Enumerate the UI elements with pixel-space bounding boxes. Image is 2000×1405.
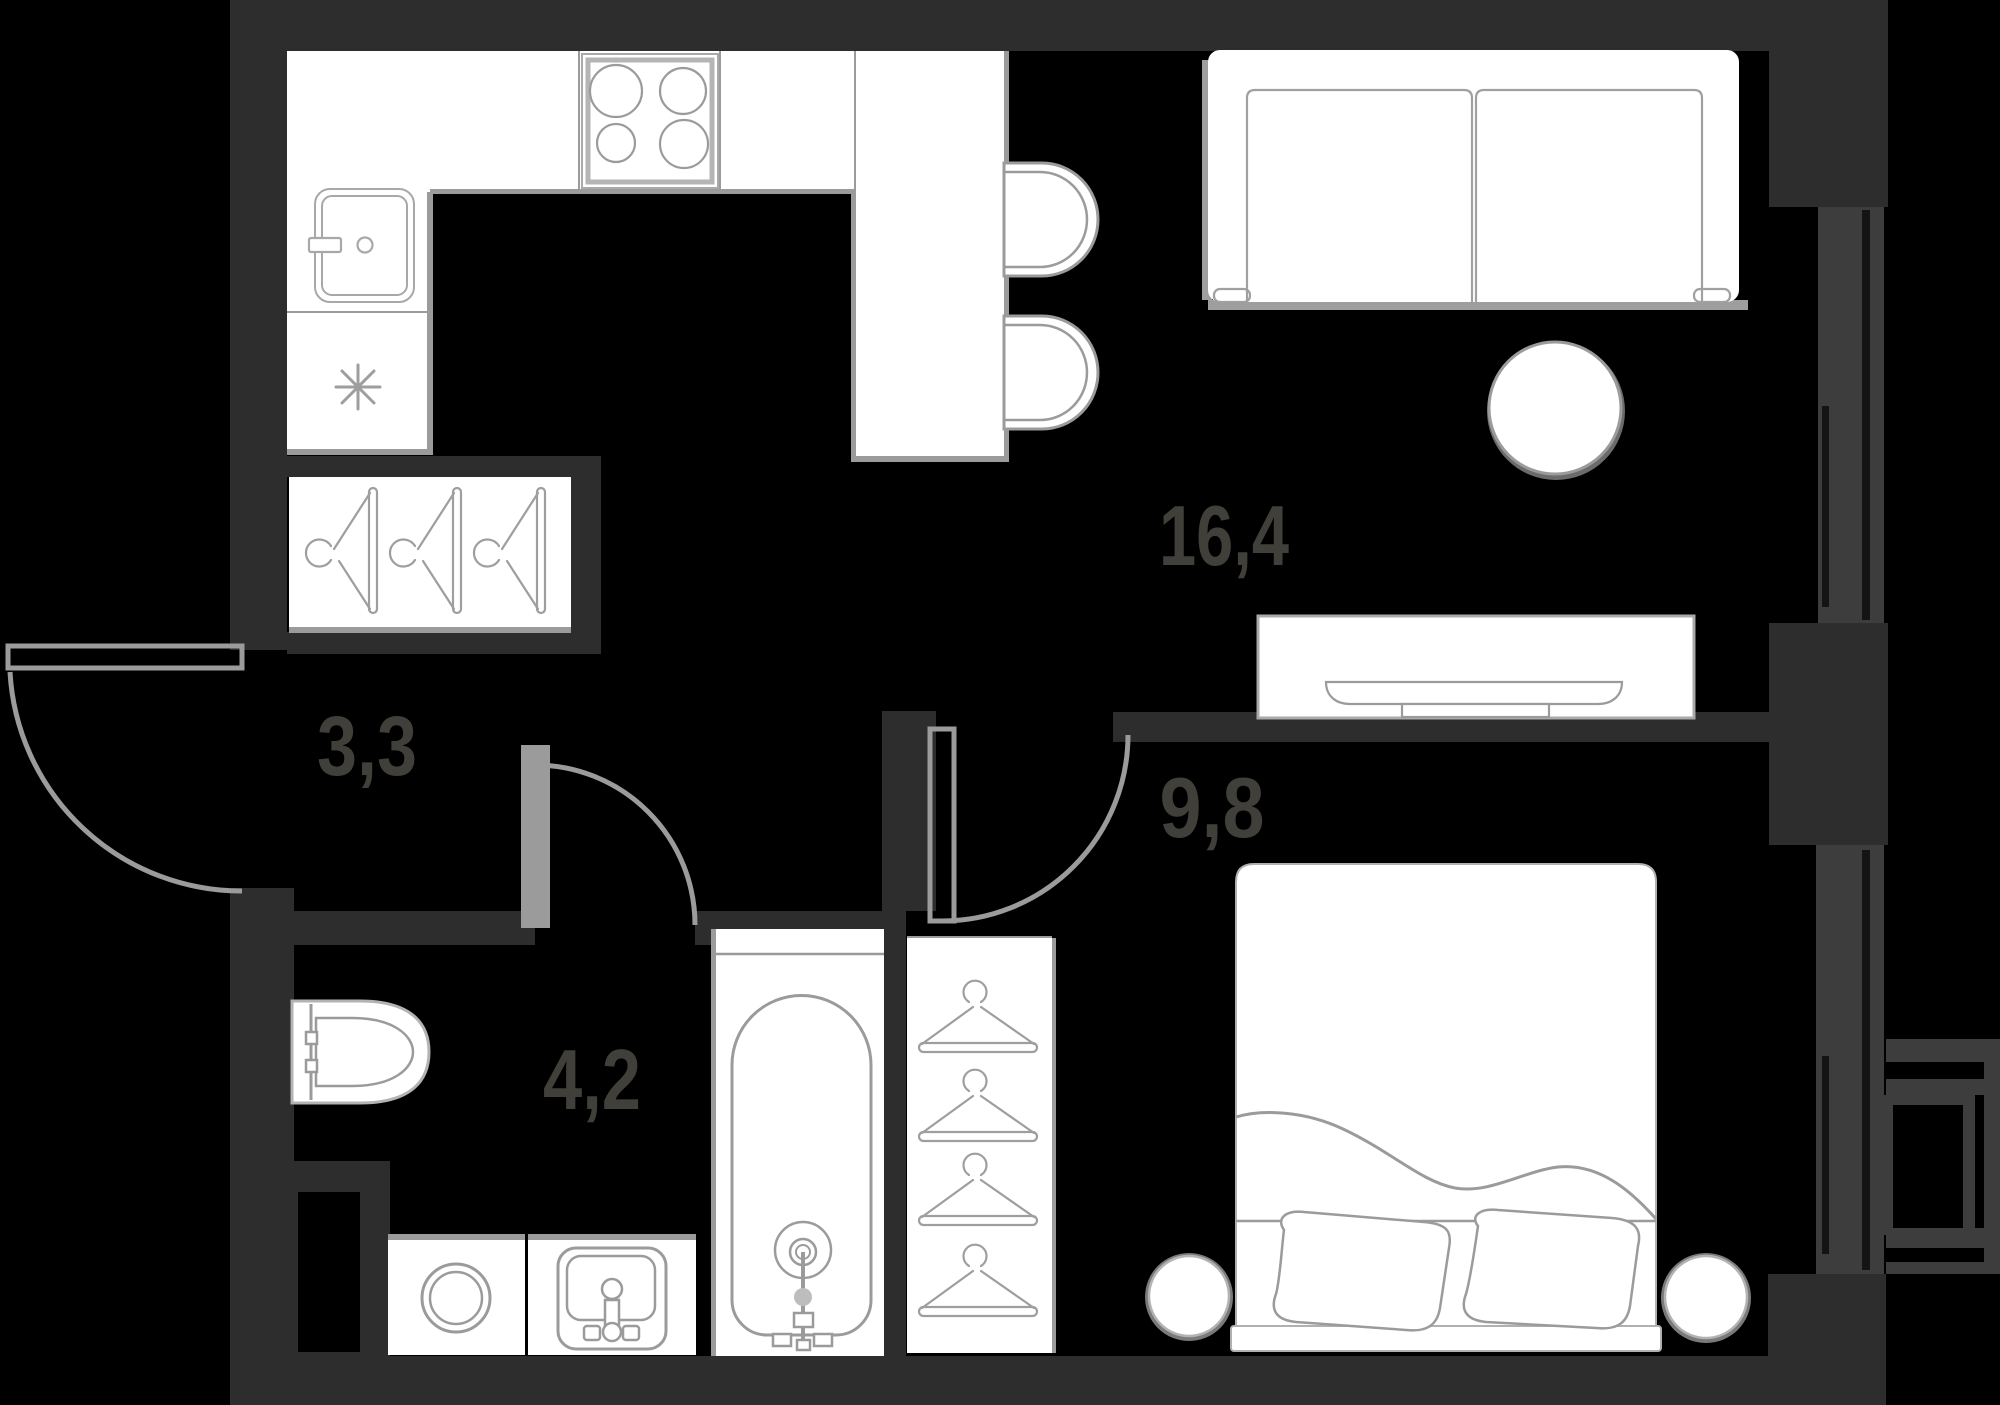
svg-text:3,3: 3,3 [317,699,417,793]
svg-text:9,8: 9,8 [1160,761,1265,856]
svg-text:16,4: 16,4 [1159,489,1289,584]
svg-text:4,2: 4,2 [543,1033,641,1128]
